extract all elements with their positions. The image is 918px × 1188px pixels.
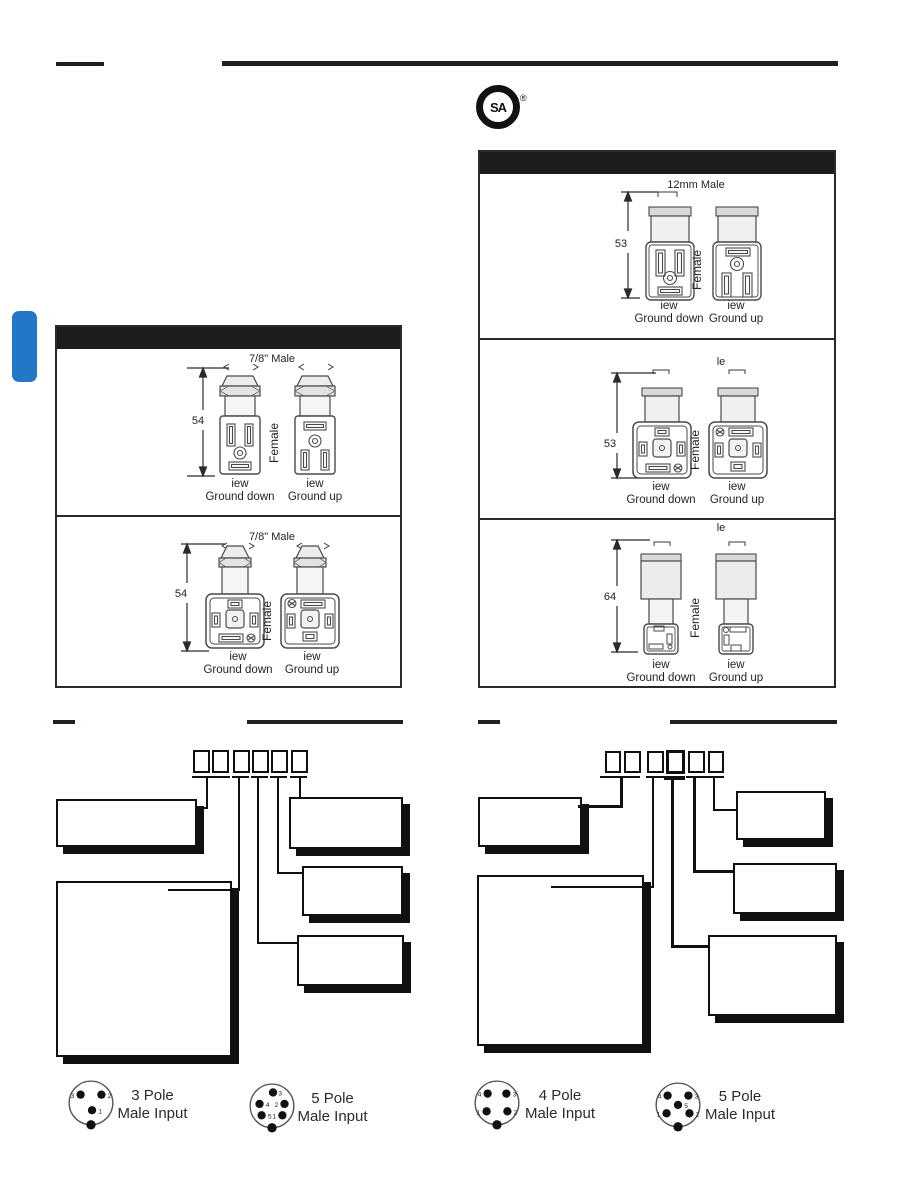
caption-ground-up: iew Ground up: [671, 300, 801, 326]
code-digit-box-1: [193, 750, 210, 773]
dim-value: 54: [192, 415, 204, 427]
connector-78-ground-down: [220, 376, 260, 474]
pin-number: 1: [272, 1113, 276, 1120]
right-tree-short-rule: [478, 720, 500, 724]
din-a-face-ground-up: [281, 594, 339, 648]
code-digit-box-2: [212, 750, 229, 773]
connector-cap-78: [294, 546, 326, 594]
pin-number: 4: [478, 1092, 482, 1099]
code-digit-box-5: [688, 751, 705, 773]
connector-cap: [642, 388, 682, 422]
csa-ring-c: SA: [476, 85, 520, 129]
tree-line: [196, 807, 208, 809]
code-digit-box-4: [252, 750, 269, 773]
tree-line: [277, 778, 279, 874]
csa-registered-mark: ®: [520, 93, 527, 103]
tree-line: [671, 780, 674, 948]
tree-line: [257, 778, 259, 944]
option-box-large: [56, 881, 232, 1057]
option-box-series: [56, 799, 197, 847]
caption-ground-up: iew Ground up: [671, 659, 801, 685]
pinout-label-4-pole: 4 Pole Male Input: [505, 1087, 615, 1123]
view-label: iew: [671, 659, 801, 672]
pin-number: 2: [274, 1102, 278, 1109]
tree-line: [693, 870, 734, 873]
top-long-rule: [222, 61, 838, 66]
tree-line: [299, 778, 301, 798]
tree-line: [206, 778, 208, 809]
pole-count: 3 Pole: [105, 1087, 200, 1105]
tree-line: [620, 778, 623, 807]
pole-count: 5 Pole: [685, 1088, 795, 1106]
caption-ground-up: iew Ground up: [250, 478, 380, 504]
connector-cap: [718, 388, 758, 422]
code-digit-box-5: [271, 750, 288, 773]
digit-underline: [192, 776, 230, 778]
ground-up-label: Ground up: [250, 491, 380, 504]
pole-title: Male Input: [505, 1105, 615, 1123]
tree-line: [238, 778, 240, 891]
digit-underline-bold: [664, 776, 685, 780]
option-box-series: [478, 797, 582, 847]
pin-number: 4: [658, 1094, 662, 1101]
pin-number: 5: [268, 1113, 272, 1120]
din-a-face-ground-up: [709, 422, 767, 478]
option-box-right-1: [736, 791, 826, 840]
pole-count: 5 Pole: [280, 1090, 385, 1108]
female-label: Female: [690, 250, 704, 290]
left-tree-long-rule: [247, 720, 403, 724]
pinout-label-3-pole: 3 Pole Male Input: [105, 1087, 200, 1123]
width-bracket: [658, 192, 677, 197]
din-a-face-ground-down: [206, 594, 264, 648]
width-bracket: [729, 542, 745, 546]
code-digit-box-3: [647, 751, 664, 773]
ground-up-label: Ground up: [672, 494, 802, 507]
top-short-rule: [56, 62, 104, 66]
code-digit-box-1: [605, 751, 621, 773]
code-digit-box-6: [708, 751, 724, 773]
ground-up-label: Ground up: [671, 313, 801, 326]
connector-tall-ground-down: [641, 554, 681, 654]
male-size-label: 12mm Male: [667, 179, 724, 191]
tree-line: [168, 889, 240, 891]
female-label: Female: [688, 598, 702, 638]
width-bracket: [729, 370, 745, 374]
pin-number: 1: [657, 1111, 661, 1118]
female-label: Female: [688, 430, 702, 470]
pin-number: 3: [71, 1093, 75, 1100]
dim-value: 53: [615, 238, 627, 250]
tree-line: [671, 945, 709, 948]
blue-tab-rect: [12, 311, 37, 382]
pin-number: 1: [98, 1108, 102, 1115]
csa-logo: SA ®: [476, 85, 532, 131]
pinout-label-5-pole: 5 Pole Male Input: [280, 1090, 385, 1126]
right-tree-long-rule: [670, 720, 837, 724]
pole-count: 4 Pole: [505, 1087, 615, 1105]
male-size-label: le: [717, 522, 726, 534]
csa-letters: SA: [490, 100, 506, 115]
digit-underline: [232, 776, 249, 778]
tree-line: [713, 809, 737, 811]
view-label: iew: [672, 481, 802, 494]
tree-line: [551, 886, 654, 888]
tree-line: [578, 805, 623, 808]
code-digit-box-4: [666, 750, 685, 774]
connector-face: [220, 416, 260, 474]
left-panel-header-bar: [57, 327, 400, 349]
dim-value: 54: [175, 588, 187, 600]
connector-tall-ground-up: [716, 554, 756, 654]
view-label: iew: [671, 300, 801, 313]
connector-cap-78: [219, 546, 251, 594]
female-label: Female: [260, 601, 274, 641]
digit-underline: [251, 776, 268, 778]
ground-up-label: Ground up: [671, 672, 801, 685]
caption-ground-up: iew Ground up: [247, 651, 377, 677]
female-label: Female: [267, 423, 281, 463]
option-box-right-3: [297, 935, 404, 986]
male-size-label: le: [717, 356, 726, 368]
tree-line: [693, 778, 696, 873]
pole-title: Male Input: [685, 1106, 795, 1124]
code-digit-box-6: [291, 750, 308, 773]
option-box-right-1: [289, 797, 403, 849]
tree-line: [277, 872, 304, 874]
tree-line: [257, 942, 299, 944]
pin-number: 1: [477, 1109, 481, 1116]
connector-12mm-ground-up: [713, 207, 761, 300]
option-box-right-3: [708, 935, 837, 1016]
option-box-right-2: [302, 866, 403, 916]
blue-side-tab: [12, 311, 38, 383]
connector-78-ground-up: [295, 376, 335, 474]
view-label: iew: [247, 651, 377, 664]
catalog-page: { "csa": { "letters": "SA", "registered"…: [0, 0, 918, 1188]
male-size-label: 7/8" Male: [249, 531, 295, 543]
dim-value: 53: [604, 438, 616, 450]
code-digit-box-3: [233, 750, 250, 773]
pole-title: Male Input: [105, 1105, 200, 1123]
option-box-right-2: [733, 863, 837, 914]
ground-up-label: Ground up: [247, 664, 377, 677]
tree-line: [713, 778, 715, 811]
male-size-label: 7/8" Male: [249, 353, 295, 365]
caption-ground-up: iew Ground up: [672, 481, 802, 507]
right-panel-header-bar: [480, 152, 834, 174]
din-a-face-ground-down: [633, 422, 691, 478]
width-bracket: [654, 542, 670, 546]
pin-number: 4: [266, 1102, 270, 1109]
code-digit-box-2: [624, 751, 641, 773]
pinout-label-5-pole: 5 Pole Male Input: [685, 1088, 795, 1124]
connector-12mm-ground-down: [646, 207, 694, 300]
left-tree-short-rule: [53, 720, 75, 724]
dim-value: 64: [604, 591, 616, 603]
view-label: iew: [250, 478, 380, 491]
digit-underline: [646, 776, 665, 778]
pole-title: Male Input: [280, 1108, 385, 1126]
tree-line: [652, 778, 654, 888]
option-box-large: [477, 875, 644, 1046]
